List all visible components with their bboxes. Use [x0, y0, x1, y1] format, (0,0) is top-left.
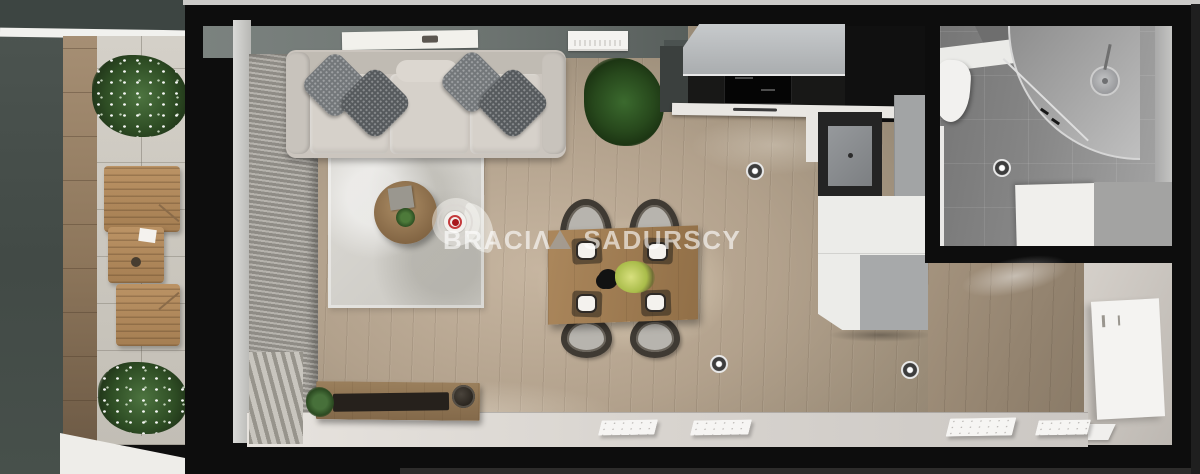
shower-head-center [1102, 78, 1108, 84]
wall-right-highlight [1191, 4, 1200, 474]
ceiling-spotlight [710, 355, 728, 373]
balcony-top-wall [0, 0, 190, 30]
bathroom-cabinet [1094, 182, 1172, 252]
door-handle [1102, 315, 1106, 327]
cooktop-glint [735, 77, 753, 79]
plate [645, 293, 666, 312]
wall-top [185, 4, 1200, 28]
switch-plate [690, 419, 752, 435]
patio-napkin [138, 228, 157, 243]
ceiling-spotlight [746, 162, 764, 180]
brand-watermark: BRACIΛ SADURSCY [443, 225, 741, 256]
patio-cup [131, 257, 141, 267]
kitchen-upper-cabinet [683, 24, 845, 76]
ac-unit [568, 31, 628, 51]
coffee-table-decor [388, 185, 415, 210]
cooktop-glint [761, 89, 775, 91]
ceiling-spotlight [993, 159, 1011, 177]
floorplan-render: BRACIΛ SADURSCY [0, 0, 1200, 474]
switch-plate [598, 420, 658, 436]
wall-bottom-highlight [400, 468, 1200, 474]
oven-knob [848, 153, 853, 158]
curtain [249, 352, 303, 444]
wall-top-highlight [183, 0, 1200, 5]
oven-glass [828, 126, 872, 186]
ac-slats [574, 40, 622, 46]
speaker [452, 385, 475, 408]
drawer-handle [733, 108, 777, 112]
brand-triangle-icon [549, 230, 571, 249]
plate [576, 294, 597, 313]
sofa-armrest-left [286, 52, 310, 154]
door-lock [1118, 315, 1121, 325]
cabinet-divider [818, 253, 928, 254]
switch-plate [1035, 420, 1091, 436]
entry-door [1091, 298, 1165, 419]
patio-chair-bottom [116, 284, 180, 346]
coffee-table-plant [396, 208, 415, 227]
cabinet-column-top [860, 255, 928, 330]
switch-plate [946, 417, 1017, 436]
balcony-exterior-wall [0, 0, 64, 474]
cabinet-floor-shadow [828, 328, 932, 342]
ceiling-spotlight [901, 361, 919, 379]
brand-text-right: SADURSCY [583, 225, 741, 255]
patio-chair-top [104, 166, 180, 232]
table-flowers [615, 261, 655, 293]
tv [333, 392, 449, 412]
bathroom-vanity [1015, 183, 1097, 253]
dining-chair-bottom-right [630, 316, 680, 358]
ceiling-light-panel [342, 30, 478, 50]
brand-text-left: BRACI [443, 225, 533, 255]
ceiling-vent [422, 36, 438, 43]
bathroom-left-wall [925, 26, 940, 263]
console-plant [306, 387, 334, 417]
shower-head [1090, 66, 1120, 96]
